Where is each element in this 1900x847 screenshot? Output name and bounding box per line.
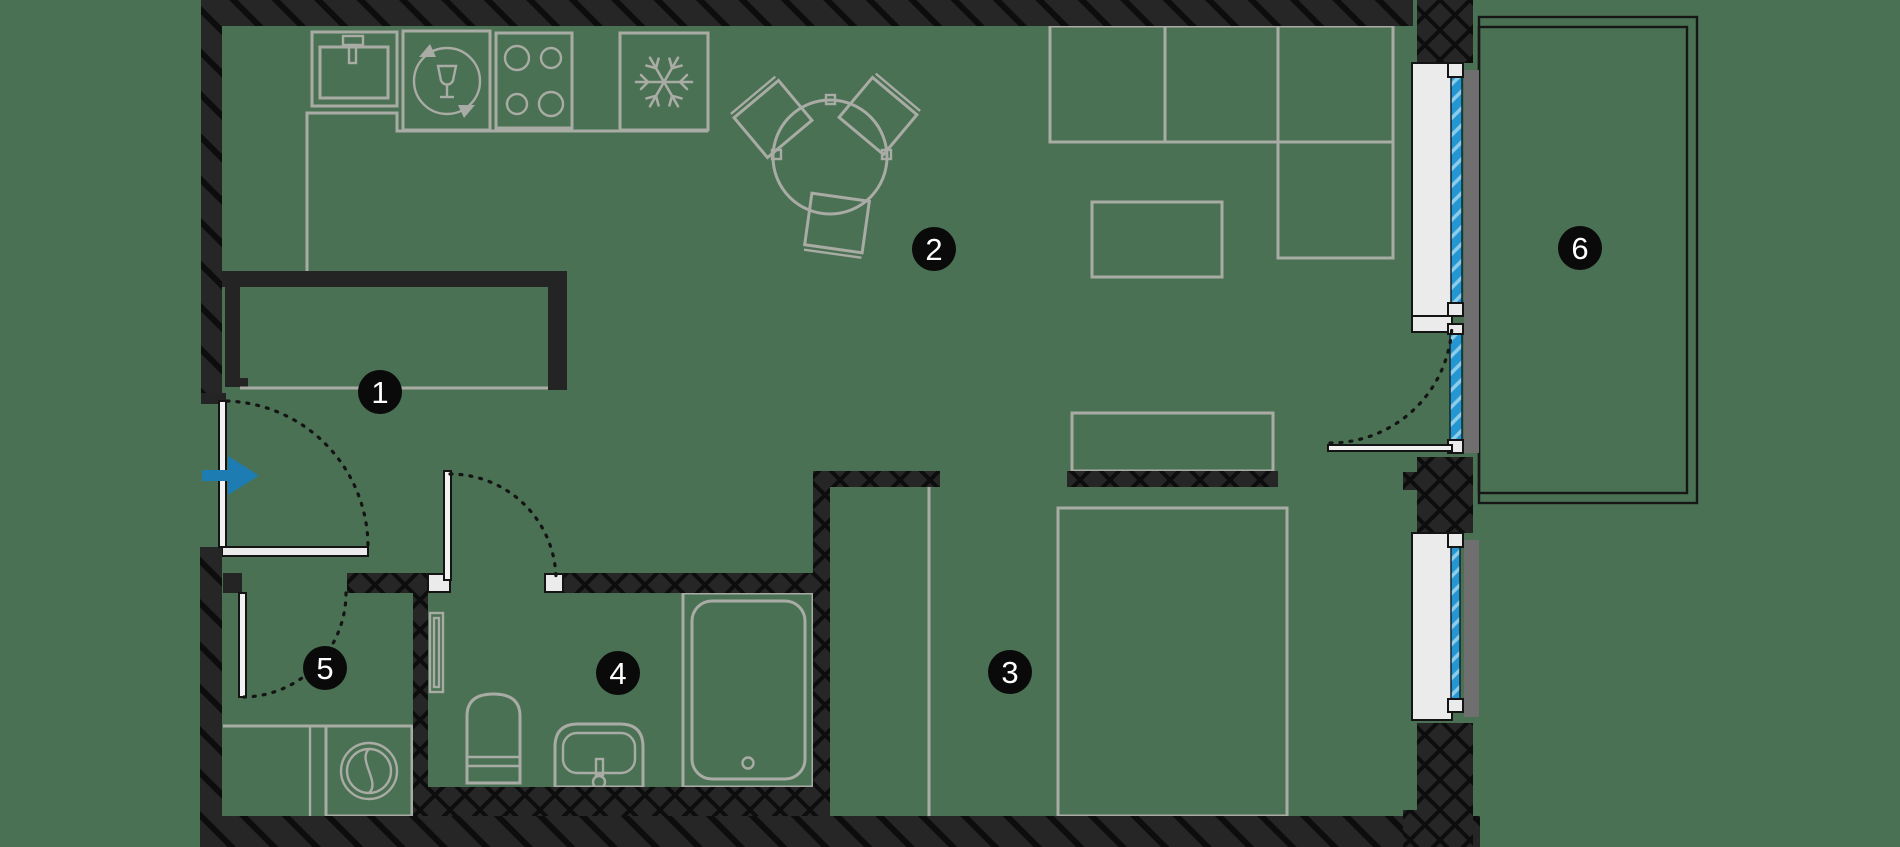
storage-door-jamb	[223, 573, 242, 593]
wall-east-bottom-ledge	[1403, 810, 1417, 847]
wall-bathroom-south	[428, 787, 815, 816]
partition-tv-wall	[1067, 471, 1278, 487]
svg-text:4: 4	[609, 656, 626, 691]
svg-text:1: 1	[371, 375, 388, 410]
wall-east-mid-ledge	[1403, 472, 1417, 490]
svg-text:3: 3	[1001, 655, 1018, 690]
room-badge-4: 4	[596, 651, 640, 695]
wall-east-top	[1417, 0, 1473, 63]
partition-corridor	[815, 471, 940, 487]
wall-east-mid	[1417, 457, 1473, 533]
wall-south	[200, 816, 1480, 847]
wall-bathroom-east	[813, 471, 830, 816]
floor-plan-page: 1 2 3 4 5 6	[0, 0, 1900, 847]
room-badge-1: 1	[358, 370, 402, 414]
floor-plan: 1 2 3 4 5 6	[0, 0, 1900, 847]
room-badge-2: 2	[912, 227, 956, 271]
wall-bathroom-north	[563, 573, 815, 593]
wall-entry-stub	[222, 547, 368, 556]
window-outer-frame	[1464, 70, 1479, 453]
wall-storage-bathroom	[413, 593, 428, 816]
wall-storage-north	[347, 573, 430, 593]
room-badge-5: 5	[303, 646, 347, 690]
svg-text:2: 2	[925, 232, 942, 267]
wall-north	[201, 0, 1413, 26]
wall-east-bottom	[1417, 723, 1473, 847]
window-outer-frame	[1464, 540, 1479, 717]
window-living	[1412, 63, 1463, 332]
svg-text:5: 5	[316, 651, 333, 686]
svg-text:6: 6	[1571, 231, 1588, 266]
room-badge-3: 3	[988, 650, 1032, 694]
wall-west-upper	[201, 0, 222, 394]
wall-west-lower	[200, 547, 222, 847]
room-badge-6: 6	[1558, 226, 1602, 270]
window-bedroom	[1412, 533, 1463, 720]
floor	[0, 0, 1900, 847]
